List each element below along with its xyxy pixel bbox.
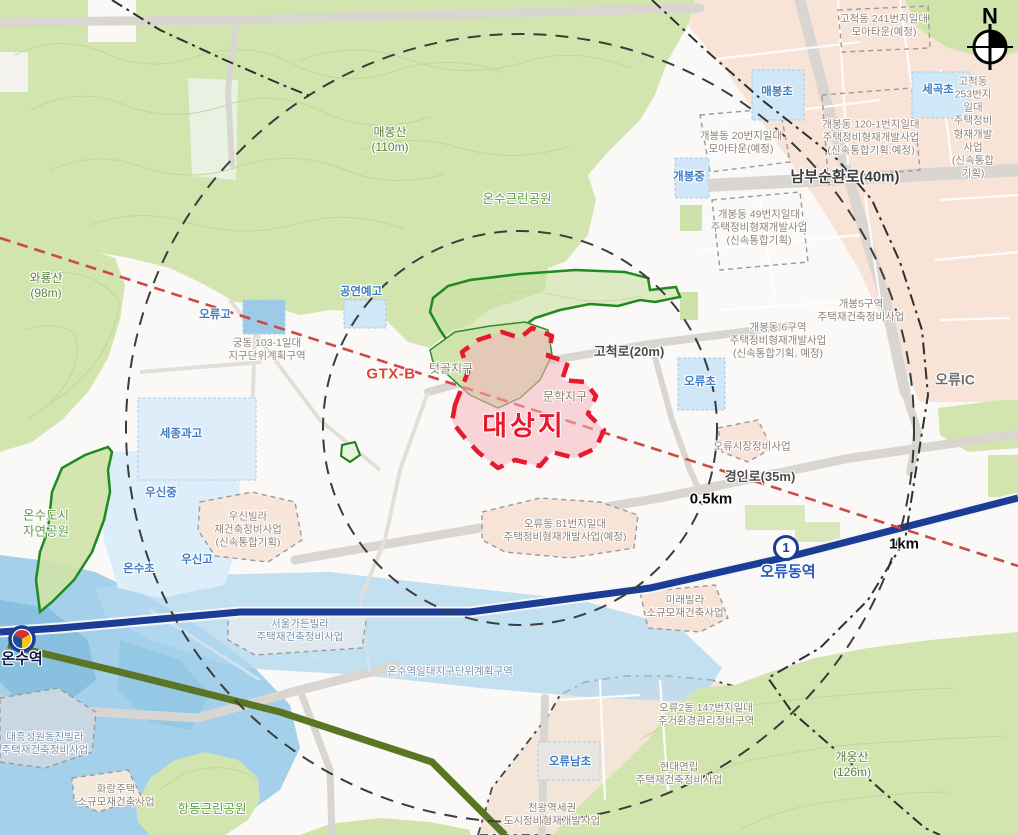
mountain-label: 매봉산 (110m) [371,125,408,155]
project-label: 대흥성원동진빌라 주택재건축정비사업 [2,731,89,757]
project-label: 개봉동 49번지일대 주택정비형재개발사업 (신속통합기획) [711,208,808,247]
road-label: 고척로(20m) [594,344,665,360]
park-label: 온수근린공원 [482,192,551,208]
road-label: 경인로(35m) [725,469,796,485]
road-label: 남부순환로(40m) [790,169,899,188]
project-label: 서울가든빌라 주택재건축정비사업 [257,618,344,644]
project-label: 개봉동 120-1번지일대 주택정비형재개발사업 (신속통합기획,예정) [822,118,919,157]
mountain-label: 와룡산 (98m) [29,271,62,301]
project-label: 온수역일대지구단위계획구역 [387,665,513,678]
project-label: 오류2동 147번지일대 주거환경관리정비구역 [658,702,755,728]
park-label: 온수도시 자연공원 [23,508,69,539]
school-label: 매봉초 [761,85,793,99]
project-label: 화랑주택 소규모재건축사업 [77,783,154,809]
project-label: 궁동 103-1일대 지구단위계획구역 [228,337,305,363]
onsu-station-icon [10,627,34,651]
project-label: 개봉동 20번지일대 모아타운(예정) [700,130,782,156]
project-label: 오류동 81번지일대 주택정비형재개발사업(예정) [504,518,627,544]
compass-north-label: N [982,2,998,30]
school-label: 개봉중 [673,170,705,184]
planning-map: N 고척동 241번지일대 모아타운(예정) 고척동 253번지일대 주택정비형… [0,0,1018,835]
school-label: 세곡초 [922,83,954,97]
park-label: 항동근린공원 [177,802,246,818]
project-label: 개봉동 6구역 주택정비형재개발사업 (신속통합기획, 예정) [730,321,827,360]
district-label: 텃골지구 [429,362,473,377]
project-label: 미래빌라 소규모재건축사업 [646,594,723,620]
school-label: 공연예고 [340,285,382,299]
school-label: 온수초 [123,562,155,576]
project-label: 개봉5구역 주택재건축정비사업 [818,298,905,324]
line1-badge: 1 [773,535,799,561]
station-label-oryudong: 오류동역 [760,564,815,583]
station-label-onsu: 온수역 [1,651,42,670]
school-label: 오류고 [199,308,231,322]
project-label: 고척동 241번지일대 모아타운(예정) [840,13,928,39]
target-site-label: 대상지 [482,410,566,444]
school-label: 우신중 [145,486,177,500]
project-label: 고척동 253번지일대 주택정비형재개발사업 (신속통합기획) [951,76,996,181]
radius-label-1km: 1km [889,536,919,555]
school-label: 오류남초 [549,755,591,769]
project-label: 현대연립 주택재건축정비사업 [636,761,723,787]
mountain-label: 개웅산 (126m) [833,750,871,780]
project-label: 우신빌라 재건축정비사업 (신속통합기획) [214,510,282,549]
gtx-b-line-label: GTX-B [366,366,415,385]
interchange-label: 오류IC [935,371,975,389]
school-label: 오류초 [684,375,716,389]
district-label: 문학지구 [543,390,587,405]
radius-label-05km: 0.5km [690,491,733,510]
project-label: 오류시장정비사업 [713,440,790,453]
school-label: 우신고 [181,553,213,567]
project-label: 천왕역세권 도시정비형재개발사업 [504,802,601,828]
school-label: 세종과고 [160,427,202,441]
